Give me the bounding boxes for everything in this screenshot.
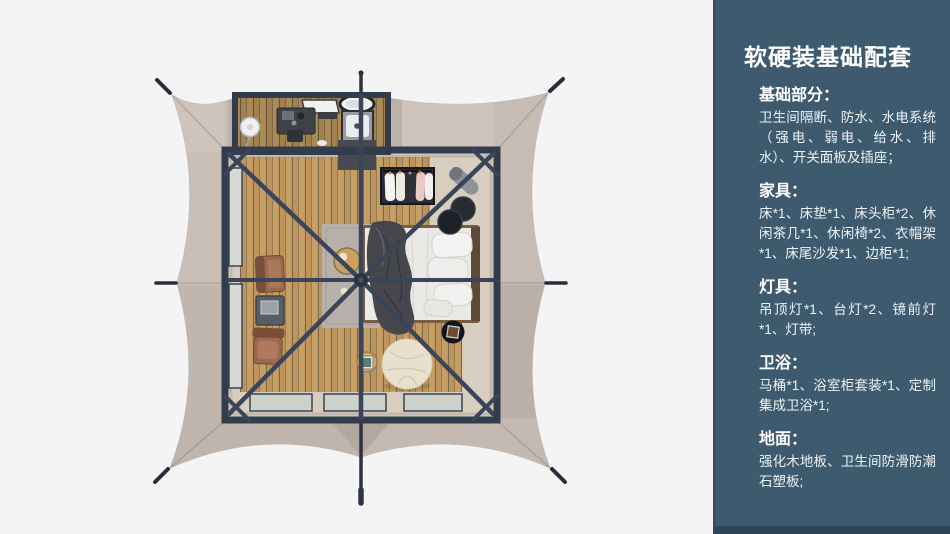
- section-flooring-body: 强化木地板、卫生间防滑防潮石塑板;: [759, 452, 936, 492]
- shower-unit: [342, 111, 373, 141]
- section-bathroom: 卫浴： 马桶*1、浴室柜套装*1、定制集成卫浴*1;: [744, 354, 936, 416]
- side-table: [256, 296, 284, 325]
- section-furniture-body: 床*1、床垫*1、床头柜*2、休闲茶几*1、休闲椅*2、衣帽架*1、床尾沙发*1…: [759, 204, 936, 264]
- lounge-chair-1: [255, 255, 285, 292]
- section-basics-heading: 基础部分：: [759, 86, 936, 106]
- section-furniture-heading: 家具：: [759, 182, 936, 202]
- floorplan-area: [0, 0, 713, 534]
- bathroom-shelf: [318, 112, 337, 119]
- side-cabinet-tray: [442, 321, 465, 344]
- glass-panel-bottom-3: [404, 394, 462, 411]
- hanging-clothes: [385, 171, 433, 202]
- lounge-chair-2: [251, 327, 284, 364]
- glass-panel-left-1: [229, 168, 242, 266]
- section-lighting: 灯具： 吊顶灯*1、台灯*2、镜前灯*1、灯带;: [744, 278, 936, 340]
- panel-title: 软硬装基础配套: [744, 44, 936, 72]
- section-flooring: 地面： 强化木地板、卫生间防滑防潮石塑板;: [744, 430, 936, 492]
- section-furniture: 家具： 床*1、床垫*1、床头柜*2、休闲茶几*1、休闲椅*2、衣帽架*1、床尾…: [744, 182, 936, 264]
- section-basics: 基础部分： 卫生间隔断、防水、水电系统（强电、弱电、给水、排水）、开关面板及插座…: [744, 86, 936, 168]
- frame-hub-center: [359, 278, 364, 283]
- clothes-rack: [381, 168, 434, 204]
- floorplan-render: [0, 0, 713, 534]
- bath-mat: [317, 140, 327, 146]
- section-bathroom-heading: 卫浴：: [759, 354, 936, 374]
- glass-panel-bottom-2: [324, 394, 386, 411]
- section-bathroom-body: 马桶*1、浴室柜套装*1、定制集成卫浴*1;: [759, 376, 936, 416]
- section-flooring-heading: 地面：: [759, 430, 936, 450]
- section-lighting-heading: 灯具：: [759, 278, 936, 298]
- spec-panel: 软硬装基础配套 基础部分： 卫生间隔断、防水、水电系统（强电、弱电、给水、排水）…: [713, 0, 950, 534]
- glass-panel-bottom-1: [250, 394, 312, 411]
- panel-footer-strip: [715, 526, 950, 534]
- section-basics-body: 卫生间隔断、防水、水电系统（强电、弱电、给水、排水）、开关面板及插座；: [759, 108, 936, 168]
- headboard: [471, 227, 480, 321]
- page: 软硬装基础配套 基础部分： 卫生间隔断、防水、水电系统（强电、弱电、给水、排水）…: [0, 0, 950, 534]
- bed: [362, 221, 480, 335]
- section-lighting-body: 吊顶灯*1、台灯*2、镜前灯*1、灯带;: [759, 300, 936, 340]
- glass-panel-left-2: [229, 284, 242, 388]
